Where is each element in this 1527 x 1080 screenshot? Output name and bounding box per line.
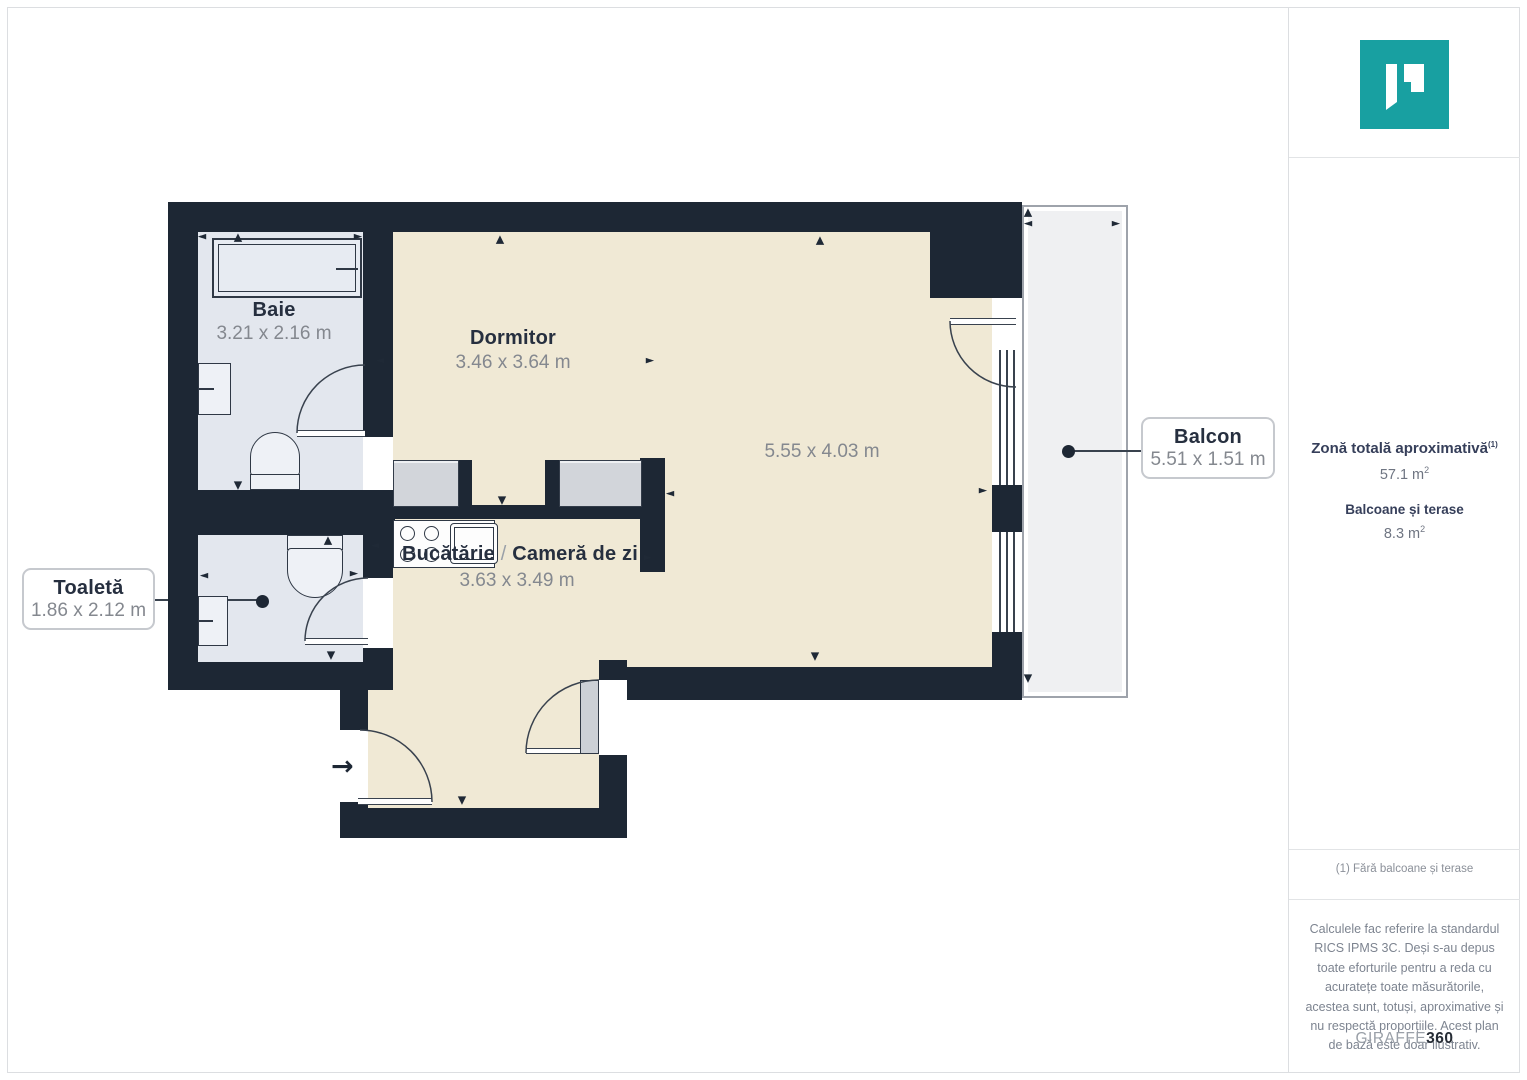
room-dims-balcon: 5.51 x 1.51 m — [1143, 449, 1273, 471]
door-leaf — [305, 638, 368, 645]
callout-toaleta: Toaletă 1.86 x 2.12 m — [22, 568, 155, 630]
wall-partition — [393, 505, 665, 519]
window — [992, 532, 1022, 632]
room-dims-dormitor: 3.46 x 3.64 m — [455, 352, 570, 374]
brand-wordmark: GIRAFFE360 — [1289, 1030, 1520, 1048]
wall — [992, 632, 1022, 700]
window — [992, 350, 1022, 485]
room-dims-living: 5.55 x 4.03 m — [764, 441, 879, 463]
total-area-title-text: Zonă totală aproximativă — [1311, 440, 1488, 457]
brand-giraffe: GIRAFFE — [1355, 1030, 1426, 1047]
door-panel — [580, 680, 599, 754]
sidebar-divider — [1289, 849, 1520, 850]
floorplan-page: → ◄▲►▲▲◄►▼▼◄►▼▲◄►▼◄►▲▼▼◄► Baie 3.21 x 2.… — [0, 0, 1527, 1080]
room-dims-baie: 3.21 x 2.16 m — [216, 323, 331, 345]
leader-dot — [1062, 445, 1075, 458]
wall — [168, 490, 395, 535]
room-label-balcon: Balcon — [1143, 426, 1273, 449]
wall-pillar — [457, 460, 472, 505]
room-label-toaleta: Toaletă — [24, 577, 153, 600]
room-dims-kitchen-living: 3.63 x 3.49 m — [459, 570, 574, 592]
entry-arrow-icon: → — [331, 753, 354, 780]
room-label-baie: Baie — [252, 299, 295, 322]
door-opening-hall — [599, 680, 627, 755]
room-label-living: Cameră de zi — [512, 543, 638, 565]
toilet-baie — [250, 432, 300, 476]
wall — [168, 202, 198, 690]
balcony-area-value-text: 8.3 m — [1384, 526, 1420, 542]
sink-toaleta — [198, 596, 228, 646]
wall-partition — [640, 458, 665, 572]
wall — [992, 485, 1022, 532]
wall-pillar — [545, 460, 559, 505]
floor-plan: → ◄▲►▲▲◄►▼▼◄►▼▲◄►▼◄►▲▼▼◄► Baie 3.21 x 2.… — [0, 0, 1287, 1080]
brand-logo — [1360, 40, 1449, 129]
bathtub-tap — [336, 268, 358, 270]
floor-hall — [368, 662, 599, 808]
balcony-area-title: Balcoane și terase — [1289, 502, 1520, 517]
room-label-dormitor: Dormitor — [470, 327, 556, 350]
door-leaf — [358, 798, 432, 805]
footnote: (1) Fără balcoane și terase — [1289, 863, 1520, 875]
wall — [340, 808, 627, 838]
brand-360: 360 — [1426, 1030, 1453, 1047]
sink-baie — [198, 363, 231, 415]
leader-line — [1068, 450, 1141, 452]
total-area-value: 57.1 m2 — [1289, 465, 1520, 483]
room-label-separator: / — [501, 543, 507, 565]
callout-balcon: Balcon 5.51 x 1.51 m — [1141, 417, 1275, 479]
door-leaf — [297, 430, 365, 437]
total-area-title: Zonă totală aproximativă(1) — [1289, 440, 1520, 457]
leader-dot — [256, 595, 269, 608]
total-area-value-text: 57.1 m — [1380, 467, 1424, 483]
wall — [168, 662, 393, 690]
wall — [168, 202, 1022, 232]
wardrobe — [559, 460, 642, 507]
total-area-value-sup: 2 — [1424, 465, 1429, 475]
sidebar: Zonă totală aproximativă(1) 57.1 m2 Balc… — [1288, 8, 1520, 1072]
door-leaf — [950, 318, 1016, 325]
room-label-kitchen-living: Bucătărie / Cameră de zi — [402, 543, 638, 566]
wall — [930, 232, 1022, 298]
sidebar-divider — [1289, 899, 1520, 900]
total-area-footnote-ref: (1) — [1488, 440, 1498, 449]
sidebar-divider — [1289, 157, 1520, 158]
balcony-area-value-sup: 2 — [1420, 524, 1425, 534]
wall — [625, 667, 1022, 700]
balcony-area-value: 8.3 m2 — [1289, 524, 1520, 542]
toilet-baie-tank — [250, 474, 300, 490]
wardrobe — [393, 460, 459, 507]
room-label-kitchen: Bucătărie — [402, 543, 495, 565]
brand-logo-icon — [1360, 40, 1449, 129]
room-dims-toaleta: 1.86 x 2.12 m — [24, 600, 153, 622]
bathtub — [212, 238, 362, 298]
door-opening-baie — [363, 437, 393, 490]
floor-living-bedroom-kitchen — [393, 232, 992, 667]
